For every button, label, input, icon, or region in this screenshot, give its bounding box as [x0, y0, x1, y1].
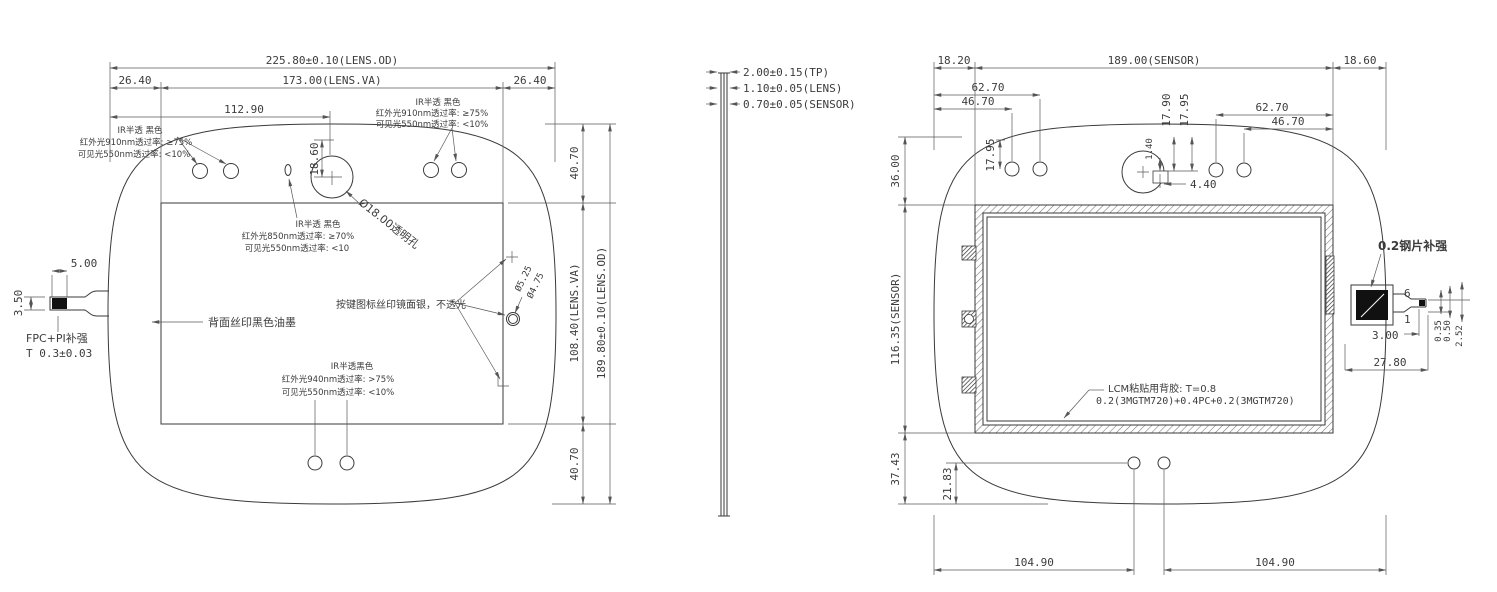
leader-button-1	[455, 259, 506, 303]
dim-6270-left: 62.70	[971, 81, 1004, 94]
dim-lens-od-height: 189.80±0.10(LENS.OD)	[595, 247, 608, 379]
hole-back-bottom-2	[1158, 457, 1170, 469]
dim-4670-left: 46.70	[961, 95, 994, 108]
label-fpc-thickness: T 0.3±0.03	[26, 347, 92, 360]
dim-3743: 37.43	[889, 452, 902, 485]
leader-note-tr-1	[434, 128, 452, 161]
touch-lens-drawing: 225.80±0.10(LENS.OD) 26.40 173.00(LENS.V…	[0, 0, 1497, 592]
note-center-line1: IR半透 黑色	[295, 219, 341, 230]
label-lcm-line2: 0.2(3MGTM720)+0.4PC+0.2(3MGTM720)	[1096, 396, 1295, 407]
pin-number-1: 1	[1404, 313, 1411, 326]
dim-3600: 36.00	[889, 154, 902, 187]
label-ir-hole: Ø18.00透明孔	[356, 196, 422, 251]
dim-fpc-tail-height: 3.50	[12, 290, 25, 317]
side-tab-hole	[965, 315, 974, 324]
pin-number-6: 6	[1404, 287, 1411, 300]
note-tr-line2: 红外光910nm透过率: ≥75%	[376, 108, 488, 119]
hole-back-tr-2	[1237, 163, 1251, 177]
dim-thickness-tp: 2.00±0.15(TP)	[743, 66, 829, 79]
fpc-stiffener-block	[52, 298, 67, 309]
stack-side-view: 2.00±0.15(TP) 1.10±0.05(LENS) 0.70±0.05(…	[706, 66, 856, 516]
dim-sensor-margin-right: 18.60	[1343, 54, 1376, 67]
dim-2183: 21.83	[941, 467, 954, 500]
note-tl-line1: IR半透 黑色	[117, 125, 163, 136]
dim-1795-left: 17.95	[984, 138, 997, 171]
hole-tr-1	[424, 163, 439, 178]
leader-bottom-holes	[315, 400, 347, 455]
label-fpc-stiffener: FPC+PI补强	[26, 332, 88, 345]
dim-300: 3.00	[1372, 329, 1399, 342]
button-hole-inner	[509, 315, 518, 324]
hole-bottom-2	[340, 456, 354, 470]
hole-back-tr-1	[1209, 163, 1223, 177]
dim-sensor-width: 189.00(SENSOR)	[1108, 54, 1201, 67]
dim-lens-va-width: 173.00(LENS.VA)	[282, 74, 381, 87]
side-tab-3	[962, 377, 976, 393]
label-button-print: 按键图标丝印镜面银，不透光	[336, 298, 466, 311]
lens-front-view: 225.80±0.10(LENS.OD) 26.40 173.00(LENS.V…	[12, 54, 616, 504]
dim-050: 0.50	[1443, 320, 1453, 342]
side-tab-1	[962, 246, 976, 260]
dim-1790: 17.90	[1160, 93, 1173, 126]
dim-fpc-tail-width: 5.00	[71, 257, 98, 270]
dim-10490-right: 104.90	[1255, 556, 1295, 569]
dim-margin-bottom: 40.70	[568, 447, 581, 480]
label-lcm-line1: LCM粘贴用背胶: T=0.8	[1108, 382, 1216, 395]
hole-tl-1	[193, 164, 208, 179]
dim-6270-right: 62.70	[1255, 101, 1288, 114]
dim-margin-left: 26.40	[118, 74, 151, 87]
dim-hole-offset-x: 112.90	[224, 103, 264, 116]
dim-lens-va-height: 108.40(LENS.VA)	[568, 263, 581, 362]
leader-steel	[1371, 254, 1381, 287]
dim-140: 1.40	[1145, 138, 1155, 160]
dim-sensor-height: 116.35(SENSOR)	[889, 273, 902, 366]
fpc-contact	[1419, 300, 1425, 306]
note-tl-line2: 红外光910nm透过率: ≥75%	[80, 137, 192, 148]
cad-drawing-canvas: 225.80±0.10(LENS.OD) 26.40 173.00(LENS.V…	[0, 0, 1497, 592]
label-back-ink: 背面丝印黑色油墨	[208, 315, 296, 329]
dim-4670-right: 46.70	[1271, 115, 1304, 128]
hole-bottom-1	[308, 456, 322, 470]
note-bottom-line1: IR半透黑色	[331, 361, 374, 372]
leader-button-dia	[515, 297, 522, 313]
dim-252: 2.52	[1455, 325, 1465, 347]
dim-margin-top: 40.70	[568, 146, 581, 179]
dim-440: 4.40	[1190, 178, 1217, 191]
dim-lens-od-width: 225.80±0.10(LENS.OD)	[266, 54, 398, 67]
hole-back-tl-1	[1005, 162, 1019, 176]
note-tl-line3: 可见光550nm透过率: <10%	[78, 149, 190, 160]
hole-back-tl-2	[1033, 162, 1047, 176]
leader-slot-note	[289, 179, 297, 218]
button-marks	[498, 251, 518, 386]
note-center-line2: 红外光850nm透过率: ≥70%	[242, 231, 354, 242]
dim-thickness-sensor: 0.70±0.05(SENSOR)	[743, 98, 856, 111]
stack-profile	[718, 73, 730, 516]
note-tr-line1: IR半透 黑色	[415, 97, 461, 108]
hole-tr-2	[452, 163, 467, 178]
dim-thickness-lens: 1.10±0.05(LENS)	[743, 82, 842, 95]
leader-note-tr-2	[452, 128, 456, 161]
dim-margin-right: 26.40	[513, 74, 546, 87]
label-steel-stiffener: 0.2钢片补强	[1378, 238, 1447, 253]
note-center-line3: 可见光550nm透过率: <10	[245, 243, 349, 254]
note-bottom-line2: 红外光940nm透过率: >75%	[282, 374, 394, 385]
dim-hole-offset-y: 18.60	[308, 142, 321, 175]
hole-tl-2	[224, 164, 239, 179]
note-bottom-line3: 可见光550nm透过率: <10%	[282, 387, 394, 398]
dim-sensor-margin-left: 18.20	[937, 54, 970, 67]
alignment-slot	[285, 165, 291, 176]
dim-2780: 27.80	[1373, 356, 1406, 369]
dim-10490-left: 104.90	[1014, 556, 1054, 569]
alignment-notch	[1153, 171, 1168, 183]
leader-button-3	[455, 303, 500, 379]
dim-1795-center: 17.95	[1178, 93, 1191, 126]
hole-back-bottom-1	[1128, 457, 1140, 469]
fpc-bond-strip	[1326, 256, 1334, 314]
sensor-back-view: 18.20 189.00(SENSOR) 18.60 62.70 46.70 1…	[889, 54, 1470, 575]
note-tr-line3: 可见光550nm透过率: <10%	[376, 119, 488, 130]
